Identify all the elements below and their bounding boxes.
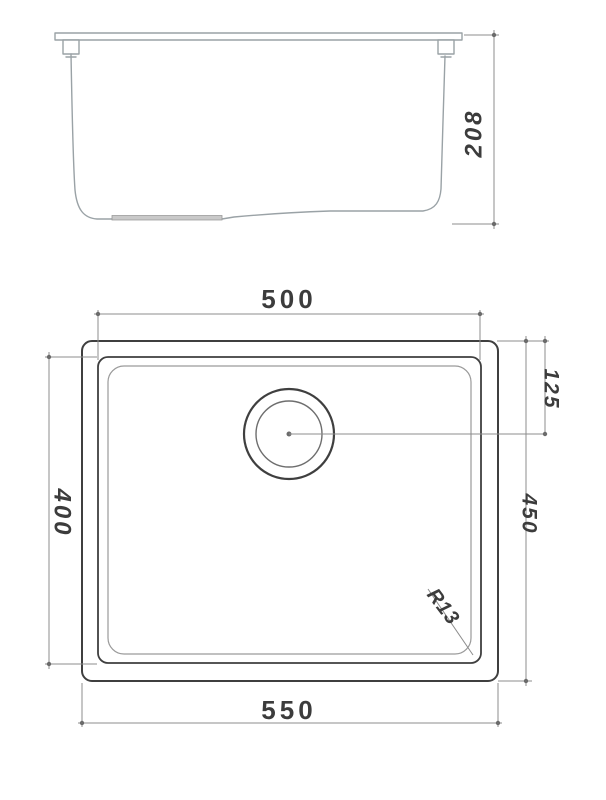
drawing-canvas: 208 500 550 <box>0 0 606 800</box>
dimension-end-dot <box>96 312 100 316</box>
dimension-end-dot <box>47 355 51 359</box>
bowl-body-outline <box>71 54 445 219</box>
left-clip <box>63 40 79 54</box>
dimension-overall-width: 550 <box>78 683 502 727</box>
dimension-end-dot <box>47 662 51 666</box>
dimension-end-dot <box>492 33 496 37</box>
dimension-end-dot <box>543 339 547 343</box>
drain-offset-label: 125 <box>540 368 563 409</box>
dimension-depth: 208 <box>452 30 499 229</box>
dimension-end-dot <box>543 432 547 436</box>
overall-width-label: 550 <box>261 695 316 725</box>
depth-dimension-label: 208 <box>461 108 488 158</box>
right-clip <box>438 40 454 54</box>
dimension-end-dot <box>524 679 528 683</box>
dimension-end-dot <box>80 721 84 725</box>
dimension-end-dot <box>496 721 500 725</box>
bowl-width-label: 500 <box>261 284 316 314</box>
side-elevation-view <box>55 33 462 220</box>
overall-length-label: 450 <box>518 492 541 534</box>
plan-view <box>82 341 545 681</box>
dimension-end-dot <box>478 312 482 316</box>
sink-technical-drawing: 208 500 550 <box>0 0 606 800</box>
dimension-end-dot <box>492 222 496 226</box>
bowl-length-label: 400 <box>49 487 76 537</box>
dimension-end-dot <box>524 339 528 343</box>
sink-rim-profile <box>55 33 462 40</box>
dimension-drain-offset: 125 <box>540 336 563 436</box>
bottom-drain-pad <box>112 216 222 221</box>
